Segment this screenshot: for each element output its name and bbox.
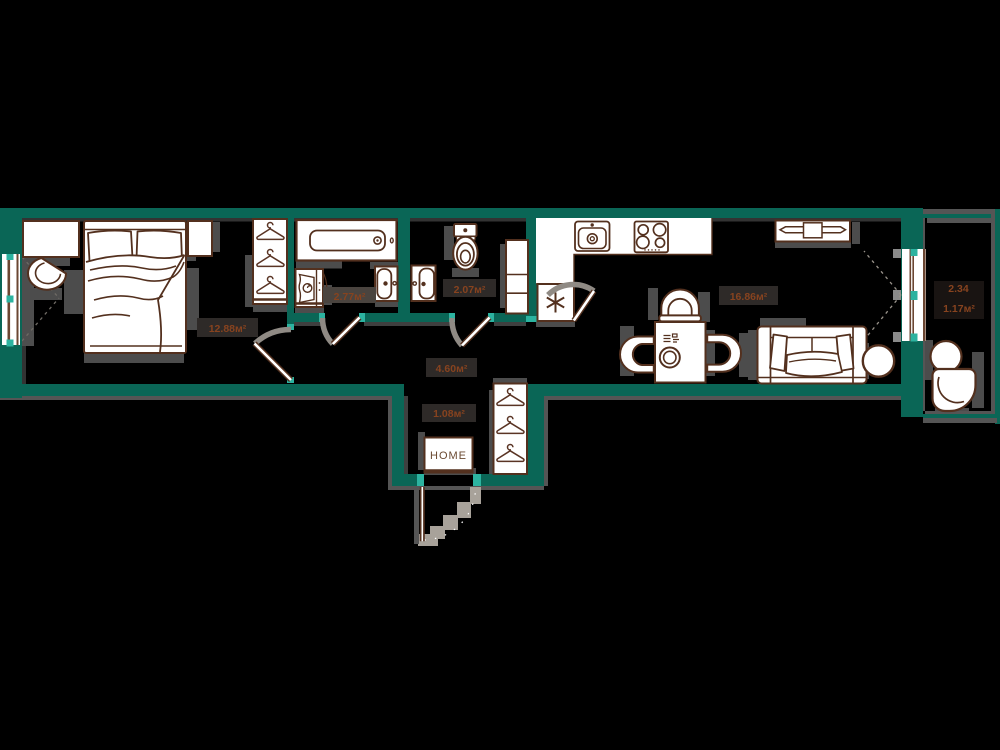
svg-text:HOME: HOME bbox=[430, 450, 467, 462]
svg-text:2.07м²: 2.07м² bbox=[454, 284, 486, 296]
svg-text:2.34: 2.34 bbox=[948, 283, 969, 295]
svg-text:16.86м²: 16.86м² bbox=[730, 291, 768, 303]
svg-text:4.60м²: 4.60м² bbox=[436, 363, 468, 375]
svg-text:12.88м²: 12.88м² bbox=[209, 323, 247, 335]
svg-text:1.17м²: 1.17м² bbox=[943, 303, 975, 315]
svg-text:2.77м²: 2.77м² bbox=[334, 291, 366, 303]
svg-text:1.08м²: 1.08м² bbox=[433, 408, 465, 420]
